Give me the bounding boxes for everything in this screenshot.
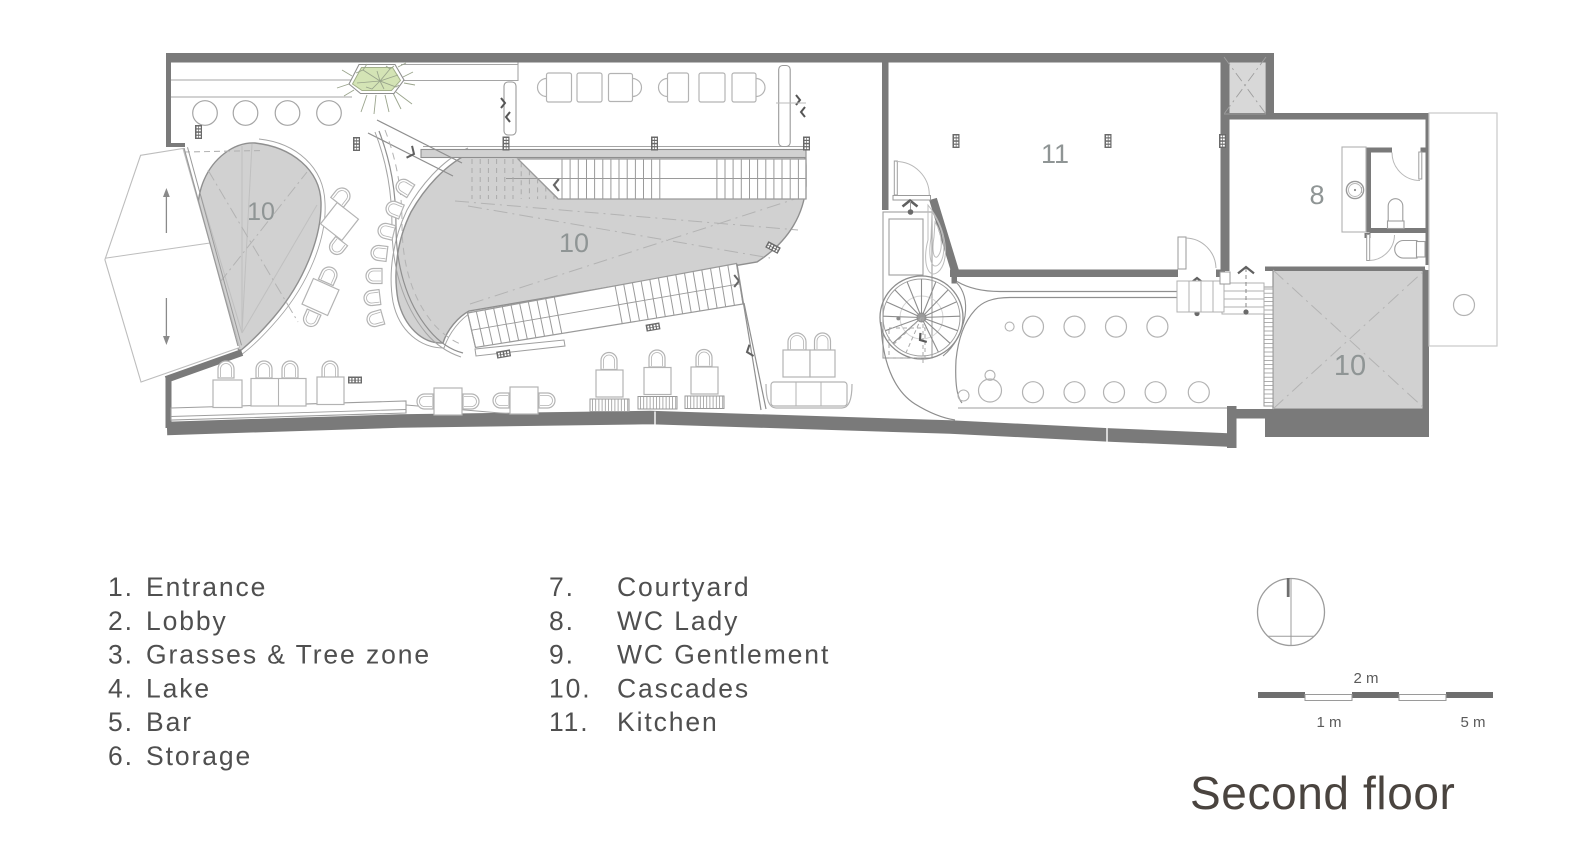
svg-text:Storage: Storage [146,741,252,771]
svg-text:4.: 4. [108,673,134,703]
svg-text:Bar: Bar [146,707,193,737]
svg-text:11: 11 [1041,139,1069,169]
svg-text:Kitchen: Kitchen [617,707,719,737]
svg-text:6.: 6. [108,741,134,771]
svg-text:WC Lady: WC Lady [617,606,739,636]
svg-text:10: 10 [559,228,589,258]
svg-text:8: 8 [1309,180,1324,210]
svg-text:10.: 10. [549,673,592,703]
svg-text:9.: 9. [549,640,575,670]
svg-text:8.: 8. [549,606,575,636]
svg-text:Lobby: Lobby [146,606,228,636]
svg-text:Grasses & Tree zone: Grasses & Tree zone [146,640,431,670]
svg-text:1 m: 1 m [1316,714,1341,731]
svg-text:1.: 1. [108,572,134,602]
svg-text:2 m: 2 m [1353,670,1378,687]
svg-text:3.: 3. [108,640,134,670]
svg-text:5.: 5. [108,707,134,737]
svg-text:Second floor: Second floor [1190,767,1455,819]
svg-text:10: 10 [247,198,275,226]
svg-text:10: 10 [1334,350,1366,382]
svg-text:5 m: 5 m [1460,714,1485,731]
svg-text:Courtyard: Courtyard [617,572,750,602]
svg-text:7.: 7. [549,572,575,602]
svg-text:Lake: Lake [146,673,211,703]
svg-text:Cascades: Cascades [617,673,750,703]
svg-text:Entrance: Entrance [146,572,267,602]
svg-text:WC Gentlement: WC Gentlement [617,640,830,670]
svg-text:2.: 2. [108,606,134,636]
svg-text:11.: 11. [549,707,590,737]
